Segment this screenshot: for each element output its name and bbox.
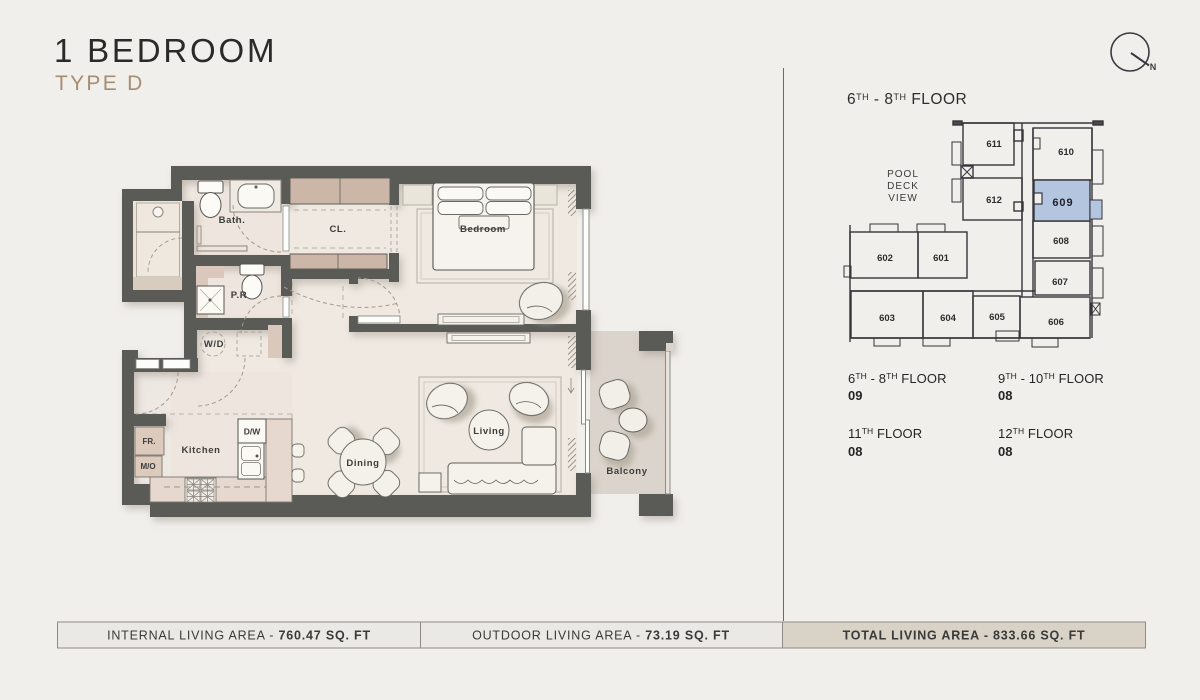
svg-text:1 BEDROOM: 1 BEDROOM	[54, 32, 277, 69]
svg-text:W/D: W/D	[204, 339, 224, 350]
svg-text:TOTAL LIVING AREA - 833.66 SQ.: TOTAL LIVING AREA - 833.66 SQ. FT	[843, 629, 1086, 643]
svg-text:08: 08	[998, 388, 1012, 403]
svg-text:FR.: FR.	[143, 437, 156, 446]
svg-text:Dining: Dining	[346, 458, 379, 469]
svg-text:607: 607	[1052, 277, 1068, 288]
svg-text:DECK: DECK	[887, 181, 919, 192]
svg-text:11TH FLOOR: 11TH FLOOR	[848, 426, 922, 441]
svg-text:12TH FLOOR: 12TH FLOOR	[998, 426, 1073, 441]
svg-text:606: 606	[1048, 317, 1064, 328]
svg-text:09: 09	[848, 388, 862, 403]
svg-text:605: 605	[989, 312, 1006, 323]
svg-text:611: 611	[986, 139, 1002, 150]
svg-text:608: 608	[1053, 236, 1069, 247]
svg-text:Kitchen: Kitchen	[181, 445, 220, 456]
svg-text:Bedroom: Bedroom	[460, 224, 506, 235]
svg-text:603: 603	[879, 313, 895, 324]
svg-text:08: 08	[998, 444, 1012, 459]
svg-text:OUTDOOR LIVING AREA - 73.19 SQ: OUTDOOR LIVING AREA - 73.19 SQ. FT	[472, 629, 730, 643]
svg-text:INTERNAL LIVING AREA - 760.47: INTERNAL LIVING AREA - 760.47 SQ. FT	[107, 629, 371, 643]
svg-text:M/O: M/O	[140, 462, 155, 471]
svg-text:P.R: P.R	[231, 290, 247, 301]
svg-text:612: 612	[986, 195, 1002, 206]
svg-text:604: 604	[940, 313, 957, 324]
svg-text:CL.: CL.	[329, 224, 346, 235]
svg-text:D/W: D/W	[244, 427, 262, 437]
svg-text:08: 08	[848, 444, 862, 459]
svg-text:601: 601	[933, 253, 950, 264]
svg-text:N: N	[1150, 62, 1157, 72]
svg-text:Balcony: Balcony	[606, 466, 647, 477]
svg-text:602: 602	[877, 253, 893, 264]
svg-text:POOL: POOL	[887, 169, 919, 180]
svg-text:Bath.: Bath.	[219, 215, 246, 226]
svg-text:609: 609	[1052, 197, 1073, 209]
svg-text:Living: Living	[473, 426, 505, 437]
svg-text:VIEW: VIEW	[888, 193, 918, 204]
svg-text:610: 610	[1058, 147, 1074, 158]
svg-text:TYPE D: TYPE D	[55, 72, 145, 95]
